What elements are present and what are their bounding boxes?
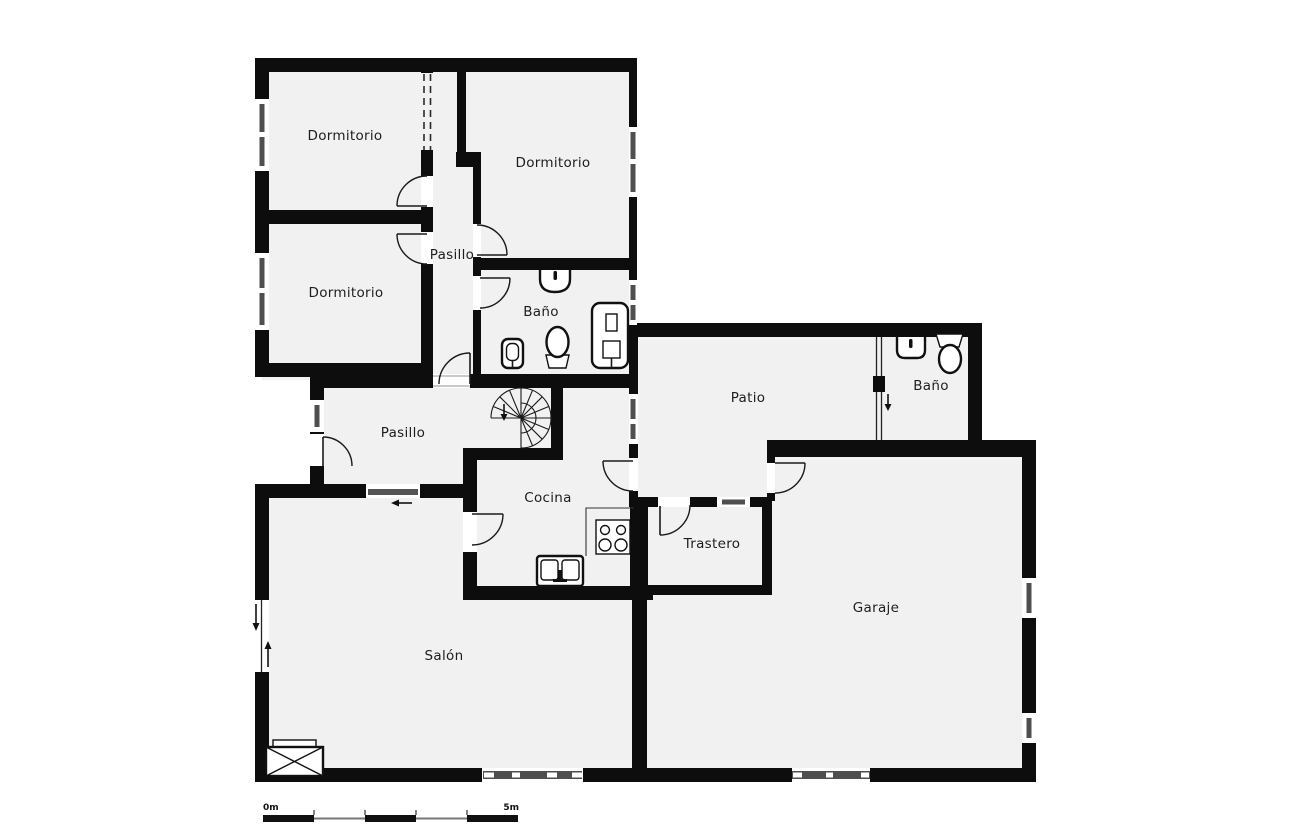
wall <box>968 323 982 457</box>
window <box>717 497 750 507</box>
wall <box>629 323 982 337</box>
burner <box>599 539 611 551</box>
wall <box>255 210 433 224</box>
room-label-salon: Salón <box>425 648 464 664</box>
window <box>792 768 870 782</box>
room-label-bano-1: Baño <box>523 304 559 320</box>
window <box>255 253 269 330</box>
window <box>255 99 269 171</box>
scale-start-label: 0m <box>263 803 279 813</box>
room-label-garaje: Garaje <box>853 600 899 616</box>
room-label-pasillo-1: Pasillo <box>430 247 474 263</box>
wall <box>630 585 772 595</box>
scale-segment <box>263 815 314 822</box>
scale-segment <box>467 815 518 822</box>
window <box>310 400 324 432</box>
burner <box>601 526 610 535</box>
wall <box>421 62 433 73</box>
shower-tray <box>603 341 620 358</box>
wall <box>632 585 647 782</box>
wall <box>767 440 1036 457</box>
faucet-icon <box>909 339 913 348</box>
shower-control <box>606 314 617 331</box>
entrance-opening <box>253 600 272 672</box>
toilet-icon <box>939 345 961 373</box>
sink-basin <box>562 560 579 580</box>
faucet-bar <box>553 579 567 582</box>
room-label-bano-2: Baño <box>913 378 949 394</box>
room-label-cocina: Cocina <box>524 490 572 506</box>
burner <box>617 526 626 535</box>
wall <box>463 586 653 600</box>
window <box>1022 713 1036 743</box>
wall <box>255 484 467 498</box>
window <box>629 280 637 325</box>
wall <box>873 376 885 392</box>
room-label-dormitorio-2: Dormitorio <box>516 155 591 171</box>
burner <box>615 539 627 551</box>
scale-segment <box>365 815 416 822</box>
wall <box>481 258 637 270</box>
wall <box>456 152 481 167</box>
wall <box>463 448 563 460</box>
fireplace-icon <box>266 740 323 776</box>
window <box>629 394 638 444</box>
scale-end-label: 5m <box>503 803 519 813</box>
sink-basin <box>541 560 558 580</box>
floor-patio-strip <box>636 442 771 502</box>
floor-garaje-lower <box>642 592 1026 772</box>
scale-bar: 0m 5m <box>263 803 519 822</box>
window <box>629 127 637 197</box>
toilet-icon <box>547 327 569 357</box>
wall <box>255 58 637 72</box>
wall <box>637 497 772 507</box>
wall <box>551 379 563 460</box>
floor-plan-canvas: Dormitorio Dormitorio Dormitorio Pasillo… <box>0 0 1290 840</box>
wall <box>630 497 648 595</box>
room-label-dormitorio-1: Dormitorio <box>308 128 383 144</box>
floor-salon <box>262 491 634 771</box>
bidet-bowl <box>507 344 519 361</box>
faucet-icon <box>554 271 558 280</box>
scale-segment <box>416 818 467 820</box>
wall <box>767 457 775 463</box>
room-label-patio: Patio <box>731 390 766 406</box>
room-label-trastero: Trastero <box>683 536 741 552</box>
room-label-dormitorio-3: Dormitorio <box>309 285 384 301</box>
scale-segment <box>314 818 365 820</box>
wall <box>762 497 772 595</box>
sliding-glass-door <box>482 768 583 782</box>
wall <box>457 58 466 154</box>
wall <box>421 150 433 167</box>
window <box>1022 578 1036 618</box>
room-label-pasillo-2: Pasillo <box>381 425 425 441</box>
wall <box>310 374 637 388</box>
